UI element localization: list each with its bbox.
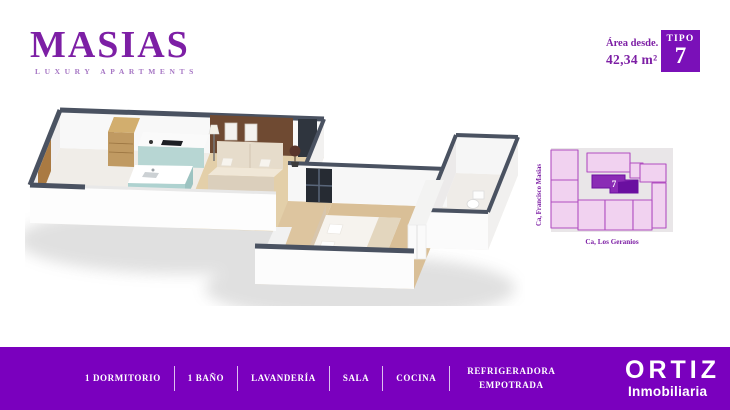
feature-bedrooms: 1 DORMITORIO: [72, 371, 174, 385]
front-wall-bedroom: [255, 246, 414, 289]
street-label-left: Ca, Francisco Masias: [536, 164, 543, 226]
map-unit-number: 7: [612, 179, 617, 189]
kettle: [149, 140, 153, 144]
agency-logo: ORTIZ Inmobiliaria: [625, 358, 720, 399]
street-label-bottom: Ca, Los Geranios: [585, 238, 639, 246]
apartment-floorplan-3d: [25, 88, 525, 306]
feature-kitchen: COCINA: [383, 371, 449, 385]
feature-fridge: REFRIGERADORA EMPOTRADA: [450, 365, 572, 391]
feature-list: 1 DORMITORIO 1 BAÑO LAVANDERÍA SALA COCI…: [72, 365, 572, 391]
sink: [142, 172, 159, 178]
laundry-glass-door: [306, 168, 332, 203]
cooktop: [161, 140, 183, 146]
feature-bathrooms: 1 BAÑO: [175, 371, 237, 385]
area-label: Área desde.: [606, 37, 658, 51]
kitchen-counter: [138, 132, 209, 168]
brand-tagline: LUXURY APARTMENTS: [30, 67, 198, 76]
unit-type-number: 7: [661, 44, 700, 68]
agency-name: ORTIZ: [625, 358, 720, 383]
front-wall-main: [30, 185, 276, 231]
brand-name: MASIAS: [30, 26, 198, 64]
sofa: [208, 141, 283, 193]
brand-logo: MASIAS LUXURY APARTMENTS: [30, 26, 198, 76]
area-info: Área desde. 42,34 m²: [606, 37, 658, 68]
agency-subtitle: Inmobiliaria: [625, 384, 720, 399]
site-map: 7 Ca, Francisco Masias Ca, Los Geranios: [528, 140, 700, 255]
unit-type-label: TIPO: [661, 30, 700, 44]
area-value: 42,34 m²: [606, 51, 658, 69]
brochure-page: MASIAS LUXURY APARTMENTS Área desde. 42,…: [0, 0, 730, 410]
unit-type-badge: TIPO 7: [661, 30, 700, 72]
footer-bar: 1 DORMITORIO 1 BAÑO LAVANDERÍA SALA COCI…: [0, 347, 730, 410]
feature-livingroom: SALA: [330, 371, 382, 385]
feature-laundry: LAVANDERÍA: [238, 371, 329, 385]
